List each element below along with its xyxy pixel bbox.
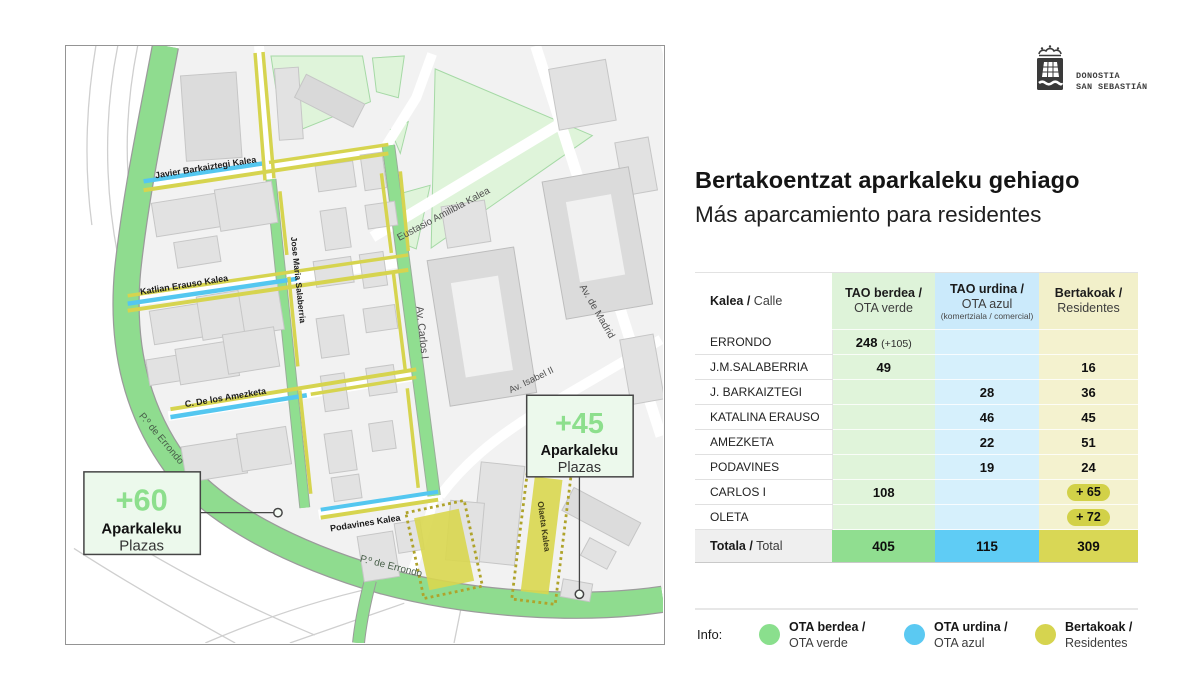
district-map: Javier Barkaiztegi Kalea Katlian Erauso … bbox=[66, 46, 663, 643]
legend: Info: OTA berdea /OTA verde OTA urdina /… bbox=[697, 619, 1157, 667]
table-row-errondo: ERRONDO 248 (+105) bbox=[695, 330, 1138, 355]
title-spanish: Más aparcamiento para residentes bbox=[695, 202, 1080, 228]
table-row-erauso: KATALINA ERAUSO 46 45 bbox=[695, 405, 1138, 430]
table-row-barkaiztegi: J. BARKAIZTEGI 28 36 bbox=[695, 380, 1138, 405]
logo-city-line2: SAN SEBASTIÁN bbox=[1076, 82, 1148, 93]
legend-item-blue: OTA urdina /OTA azul bbox=[904, 619, 1008, 651]
table-total-row: Totala / Total 405 115 309 bbox=[695, 530, 1138, 563]
parking-table-wrap: Kalea / Calle TAO berdea / OTA verde TAO… bbox=[695, 272, 1138, 563]
badge-45-word1: Aparkaleku bbox=[541, 443, 619, 459]
badge-60-word2: Plazas bbox=[119, 537, 164, 554]
blue-zone-dot-icon bbox=[904, 624, 925, 645]
total-blue: 115 bbox=[935, 530, 1039, 563]
badge-45-word2: Plazas bbox=[558, 460, 601, 476]
city-logo: DONOSTIA SAN SEBASTIÁN bbox=[1032, 42, 1148, 96]
parking-table: Kalea / Calle TAO berdea / OTA verde TAO… bbox=[695, 272, 1138, 563]
total-green: 405 bbox=[832, 530, 935, 563]
logo-city-line1: DONOSTIA bbox=[1076, 71, 1148, 82]
district-map-panel: Javier Barkaiztegi Kalea Katlian Erauso … bbox=[65, 45, 665, 645]
legend-item-green: OTA berdea /OTA verde bbox=[759, 619, 865, 651]
legend-label: Info: bbox=[697, 627, 722, 642]
legend-divider bbox=[695, 608, 1138, 610]
table-row-salaberria: J.M.SALABERRIA 49 16 bbox=[695, 355, 1138, 380]
table-row-podavines: PODAVINES 19 24 bbox=[695, 455, 1138, 480]
table-header-row: Kalea / Calle TAO berdea / OTA verde TAO… bbox=[695, 273, 1138, 330]
badge-45-anchor-dot bbox=[575, 590, 583, 598]
table-row-amezketa: AMEZKETA 22 51 bbox=[695, 430, 1138, 455]
badge-60-word1: Aparkaleku bbox=[101, 521, 181, 538]
col-header-green: TAO berdea / OTA verde bbox=[832, 273, 935, 330]
page-heading: Bertakoentzat aparkaleku gehiago Más apa… bbox=[695, 167, 1080, 228]
page: Javier Barkaiztegi Kalea Katlian Erauso … bbox=[0, 0, 1200, 675]
title-basque: Bertakoentzat aparkaleku gehiago bbox=[695, 167, 1080, 194]
green-zone-dot-icon bbox=[759, 624, 780, 645]
resident-zone-dot-icon bbox=[1035, 624, 1056, 645]
resident-gain-pill: + 65 bbox=[1067, 484, 1110, 501]
col-header-street: Kalea / Calle bbox=[695, 273, 832, 330]
table-row-carlos-i: CARLOS I 108 + 65 bbox=[695, 480, 1138, 505]
col-header-blue: TAO urdina / OTA azul (komertziala / com… bbox=[935, 273, 1039, 330]
total-yellow: 309 bbox=[1039, 530, 1138, 563]
badge-60-value: +60 bbox=[115, 483, 167, 518]
city-crest-icon bbox=[1032, 42, 1068, 96]
table-row-oleta: OLETA + 72 bbox=[695, 505, 1138, 530]
badge-60-anchor-dot bbox=[274, 508, 282, 516]
legend-item-yellow: Bertakoak /Residentes bbox=[1035, 619, 1132, 651]
resident-gain-pill: + 72 bbox=[1067, 509, 1110, 526]
col-header-yellow: Bertakoak / Residentes bbox=[1039, 273, 1138, 330]
badge-45-value: +45 bbox=[555, 408, 604, 440]
